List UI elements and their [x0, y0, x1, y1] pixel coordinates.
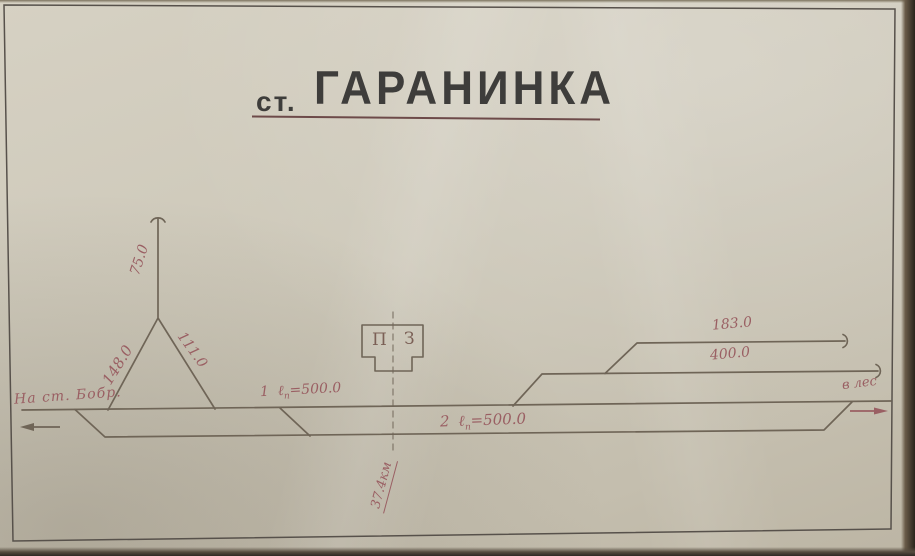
track2-length-value: =500.0: [470, 410, 526, 430]
left-arrow-icon: [20, 423, 60, 431]
photo-edge-top: [0, 0, 915, 3]
wye-track: [108, 219, 215, 410]
building-letter-right: З: [404, 329, 415, 349]
siding-middle-line: [513, 371, 878, 406]
station-title-prefix: ст.: [256, 86, 297, 118]
track2-number: 2: [440, 412, 450, 430]
track1-length-value: =500.0: [289, 380, 342, 399]
crossover-line: [280, 408, 310, 436]
main-track-line: [22, 401, 891, 410]
track2-length-label: 2ℓп=500.0: [440, 410, 527, 434]
photo-edge-bottom: [0, 547, 915, 556]
photographed-track-diagram: ст. ГАРАНИНКА На ст. Бобр. 75.0 148.0 11…: [0, 0, 915, 556]
photo-edge-right: [901, 0, 915, 556]
building-letter-left: П: [372, 330, 387, 350]
right-arrow-icon: [850, 408, 888, 415]
track1-number: 1: [260, 384, 270, 400]
station-title: ГАРАНИНКА: [314, 62, 615, 116]
